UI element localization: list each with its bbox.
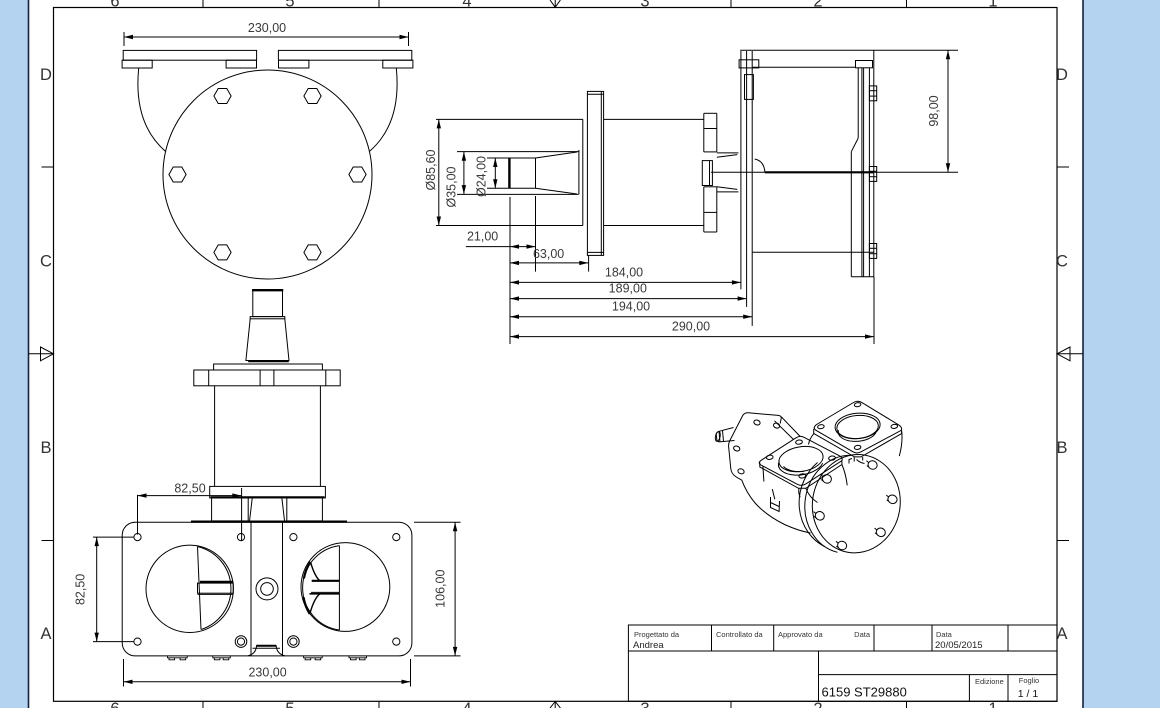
svg-text:3: 3 — [640, 0, 649, 11]
svg-text:1: 1 — [988, 0, 997, 11]
svg-text:6159 ST29880: 6159 ST29880 — [822, 685, 907, 700]
svg-text:C: C — [40, 253, 52, 271]
svg-text:5: 5 — [285, 700, 294, 708]
svg-text:Controllato da: Controllato da — [716, 630, 764, 639]
svg-text:C: C — [1056, 253, 1068, 271]
svg-text:Ø35,00: Ø35,00 — [445, 166, 459, 207]
svg-text:2: 2 — [813, 0, 822, 11]
svg-text:Data: Data — [936, 630, 953, 639]
svg-text:Ø85,60: Ø85,60 — [424, 149, 438, 190]
svg-text:6: 6 — [110, 0, 119, 11]
svg-text:21,00: 21,00 — [467, 230, 498, 244]
svg-text:230,00: 230,00 — [248, 666, 286, 680]
svg-text:290,00: 290,00 — [672, 319, 710, 333]
svg-text:Data: Data — [854, 630, 871, 639]
svg-text:D: D — [1056, 66, 1068, 84]
svg-text:5: 5 — [285, 0, 294, 11]
svg-text:82,50: 82,50 — [74, 574, 88, 605]
svg-text:B: B — [40, 439, 51, 457]
svg-text:63,00: 63,00 — [533, 247, 564, 261]
svg-text:184,00: 184,00 — [605, 266, 643, 280]
svg-text:Progettato da: Progettato da — [634, 630, 680, 639]
svg-text:D: D — [40, 66, 52, 84]
svg-text:B: B — [1056, 439, 1067, 457]
svg-text:20/05/2015: 20/05/2015 — [935, 640, 983, 651]
svg-text:Approvato da: Approvato da — [778, 630, 823, 639]
svg-text:6: 6 — [110, 700, 119, 708]
svg-text:189,00: 189,00 — [609, 282, 647, 296]
svg-text:Andrea: Andrea — [633, 640, 664, 651]
svg-text:Ø24,00: Ø24,00 — [475, 156, 489, 197]
svg-text:230,00: 230,00 — [248, 21, 286, 35]
svg-text:4: 4 — [462, 700, 471, 708]
svg-text:106,00: 106,00 — [433, 570, 447, 608]
svg-text:4: 4 — [462, 0, 471, 11]
svg-text:194,00: 194,00 — [612, 300, 650, 314]
svg-text:82,50: 82,50 — [174, 482, 205, 496]
svg-text:A: A — [1056, 625, 1067, 643]
svg-text:1 / 1: 1 / 1 — [1018, 688, 1039, 700]
svg-text:A: A — [40, 625, 51, 643]
svg-text:98,00: 98,00 — [927, 95, 941, 126]
svg-text:Edizione: Edizione — [975, 677, 1004, 686]
svg-text:Foglio: Foglio — [1019, 676, 1039, 685]
